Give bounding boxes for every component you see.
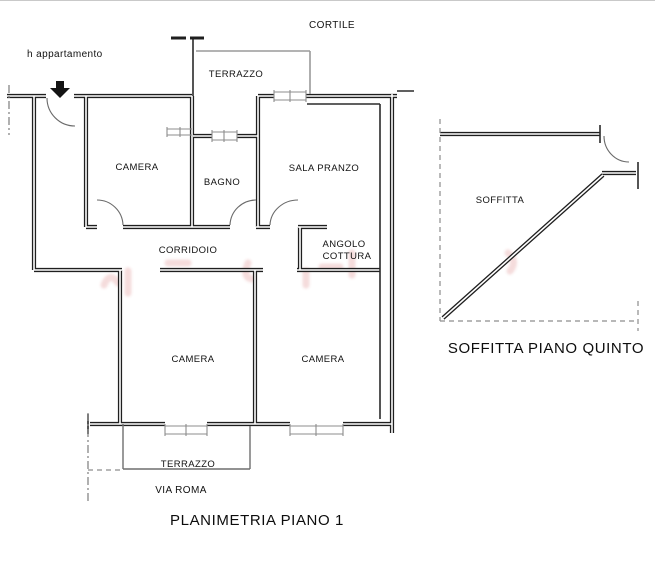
watermark	[104, 253, 514, 293]
room-label-corridoio: CORRIDOIO	[159, 245, 218, 256]
room-label-angolo-line1: ANGOLO	[322, 239, 365, 250]
entrance-arrow-icon	[50, 81, 70, 98]
room-label-terrazzo-top: TERRAZZO	[209, 69, 263, 80]
room-label-camera-top: CAMERA	[115, 162, 158, 173]
room-label-camera-bottom-left: CAMERA	[171, 354, 214, 365]
room-label-soffitta: SOFFITTA	[476, 195, 525, 206]
floorplan-page: h appartamento CORTILE TERRAZZO CAMERA B…	[0, 0, 655, 564]
walls-main	[7, 94, 636, 433]
street-label: VIA ROMA	[155, 485, 207, 496]
room-label-sala-pranzo: SALA PRANZO	[289, 163, 359, 174]
floor-plan-canvas: h appartamento CORTILE TERRAZZO CAMERA B…	[0, 1, 655, 564]
plan-main-title: PLANIMETRIA PIANO 1	[170, 512, 344, 529]
room-label-camera-bottom-right: CAMERA	[301, 354, 344, 365]
room-label-angolo-line2: COTTURA	[323, 251, 372, 262]
plan-attic-title: SOFFITTA PIANO QUINTO	[448, 340, 644, 357]
courtyard-label: CORTILE	[309, 20, 355, 31]
room-label-bagno: BAGNO	[204, 177, 240, 188]
room-label-terrazzo-bottom: TERRAZZO	[161, 459, 215, 470]
entrance-note-label: h appartamento	[27, 49, 103, 60]
boundary-lines	[9, 85, 638, 503]
